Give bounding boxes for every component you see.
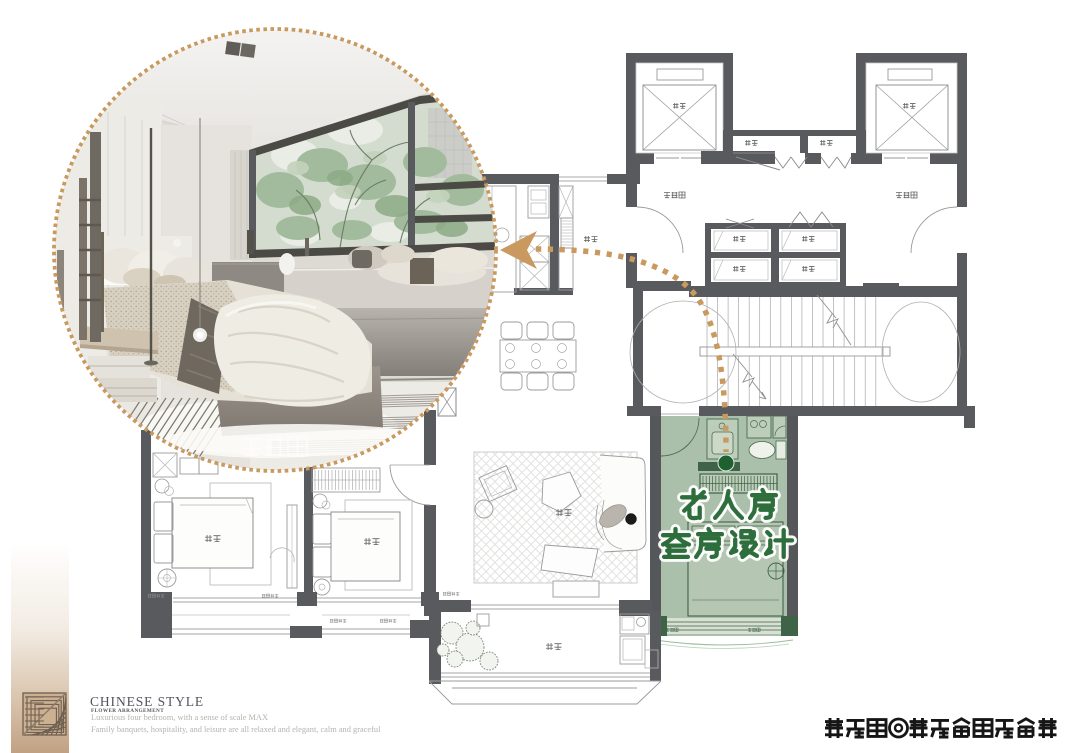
svg-text:Family banquets, hospitality,: Family banquets, hospitality, and leisur… xyxy=(91,725,381,734)
svg-text:Luxurious four bedroom, with a: Luxurious four bedroom, with a sense of … xyxy=(91,713,268,722)
svg-text:CHINESE STYLE: CHINESE STYLE xyxy=(90,694,204,709)
